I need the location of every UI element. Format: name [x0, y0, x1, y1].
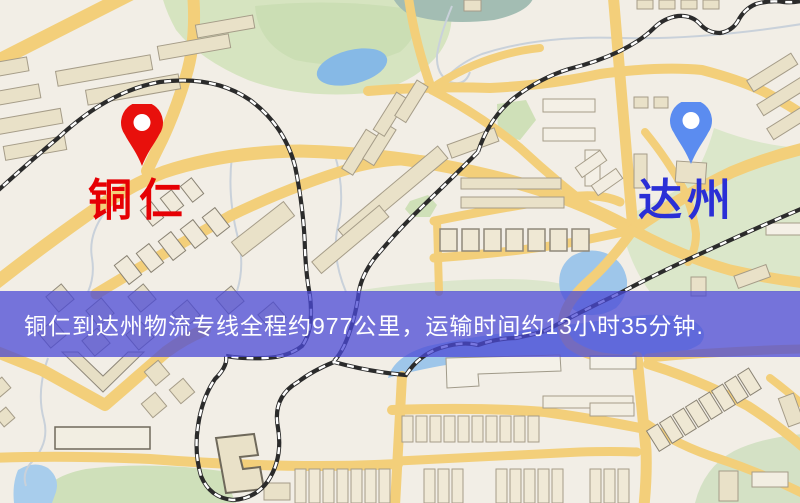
route-info-banner: 铜仁到达州物流专线全程约977公里，运输时间约13小时35分钟.	[0, 291, 800, 357]
destination-pin-shape	[670, 102, 712, 164]
origin-marker[interactable]	[119, 104, 165, 167]
route-info-text: 铜仁到达州物流专线全程约977公里，运输时间约13小时35分钟.	[0, 307, 704, 341]
map-background	[0, 0, 800, 503]
origin-label: 铜仁	[88, 179, 190, 223]
map-pin-icon	[668, 102, 714, 165]
pin-hole	[683, 112, 700, 129]
destination-marker[interactable]	[668, 102, 714, 165]
map-pin-icon	[119, 104, 165, 167]
origin-pin-shape	[121, 104, 163, 166]
pin-hole	[134, 114, 151, 131]
destination-label: 达州	[638, 179, 736, 223]
map-view: 铜仁 达州 铜仁到达州物流专线全程约977公里，运输时间约13小时35分钟.	[0, 0, 800, 503]
